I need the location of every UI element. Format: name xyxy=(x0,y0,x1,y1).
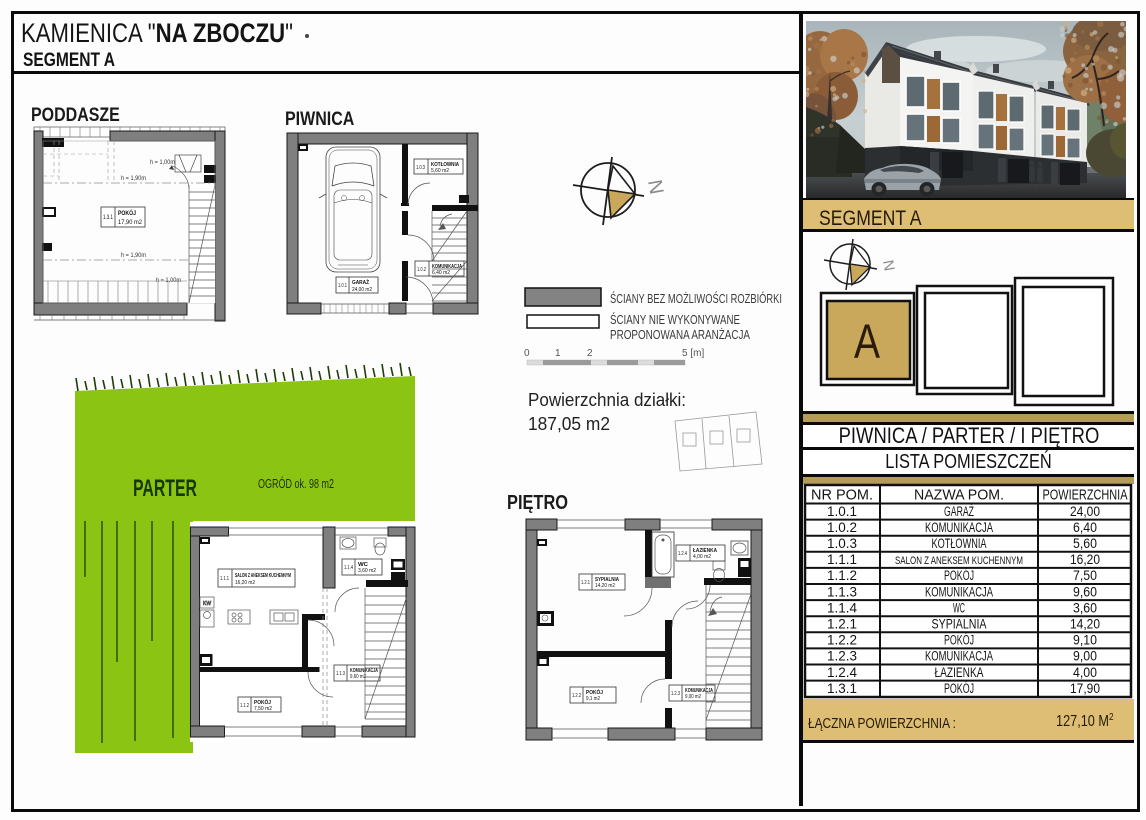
svg-text:KOMUNIKACJA: KOMUNIKACJA xyxy=(925,520,993,535)
svg-text:3,60: 3,60 xyxy=(1073,600,1097,615)
svg-text:1.2.4: 1.2.4 xyxy=(827,665,857,680)
svg-text:SYPIALNIA: SYPIALNIA xyxy=(932,617,987,632)
svg-text:1.2.1: 1.2.1 xyxy=(827,617,857,632)
svg-text:16,20: 16,20 xyxy=(1070,552,1100,567)
svg-text:9,10: 9,10 xyxy=(1073,633,1097,648)
svg-text:1.3.1: 1.3.1 xyxy=(827,681,857,696)
svg-text:POKÓJ: POKÓJ xyxy=(944,568,974,583)
svg-text:24,00: 24,00 xyxy=(1070,504,1100,519)
svg-text:1.2.2: 1.2.2 xyxy=(827,633,857,648)
svg-text:NR POM.: NR POM. xyxy=(811,487,873,504)
svg-text:14,20: 14,20 xyxy=(1070,617,1100,632)
svg-text:4,00: 4,00 xyxy=(1073,665,1097,680)
svg-text:1.1.4: 1.1.4 xyxy=(827,600,857,615)
svg-text:1.0.2: 1.0.2 xyxy=(827,520,857,535)
svg-text:1.0.3: 1.0.3 xyxy=(827,536,857,551)
svg-text:1.2.3: 1.2.3 xyxy=(827,649,857,664)
svg-text:KOTŁOWNIA: KOTŁOWNIA xyxy=(932,536,987,551)
svg-text:9,60: 9,60 xyxy=(1073,584,1097,599)
svg-text:KOMUNIKACJA: KOMUNIKACJA xyxy=(925,584,993,599)
svg-text:1.1.2: 1.1.2 xyxy=(827,568,857,583)
svg-text:1.1.3: 1.1.3 xyxy=(827,584,857,599)
svg-text:ŁAZIENKA: ŁAZIENKA xyxy=(935,665,984,680)
svg-text:1.0.1: 1.0.1 xyxy=(827,504,857,519)
svg-text:6,40: 6,40 xyxy=(1073,520,1097,535)
svg-text:SALON Z ANEKSEM KUCHENNYM: SALON Z ANEKSEM KUCHENNYM xyxy=(895,555,1023,567)
svg-text:GARAŻ: GARAŻ xyxy=(944,504,974,519)
svg-text:POKÓJ: POKÓJ xyxy=(944,633,974,648)
svg-text:7,50: 7,50 xyxy=(1073,568,1097,583)
svg-text:1.1.1: 1.1.1 xyxy=(827,552,857,567)
svg-text:KOMUNIKACJA: KOMUNIKACJA xyxy=(925,649,993,664)
svg-text:POWIERZCHNIA: POWIERZCHNIA xyxy=(1043,487,1128,504)
svg-text:NAZWA POM.: NAZWA POM. xyxy=(914,487,1004,504)
svg-text:WC: WC xyxy=(953,600,965,615)
svg-text:5,60: 5,60 xyxy=(1073,536,1097,551)
svg-text:POKÓJ: POKÓJ xyxy=(944,681,974,696)
svg-text:17,90: 17,90 xyxy=(1070,681,1100,696)
svg-text:9,00: 9,00 xyxy=(1073,649,1097,664)
